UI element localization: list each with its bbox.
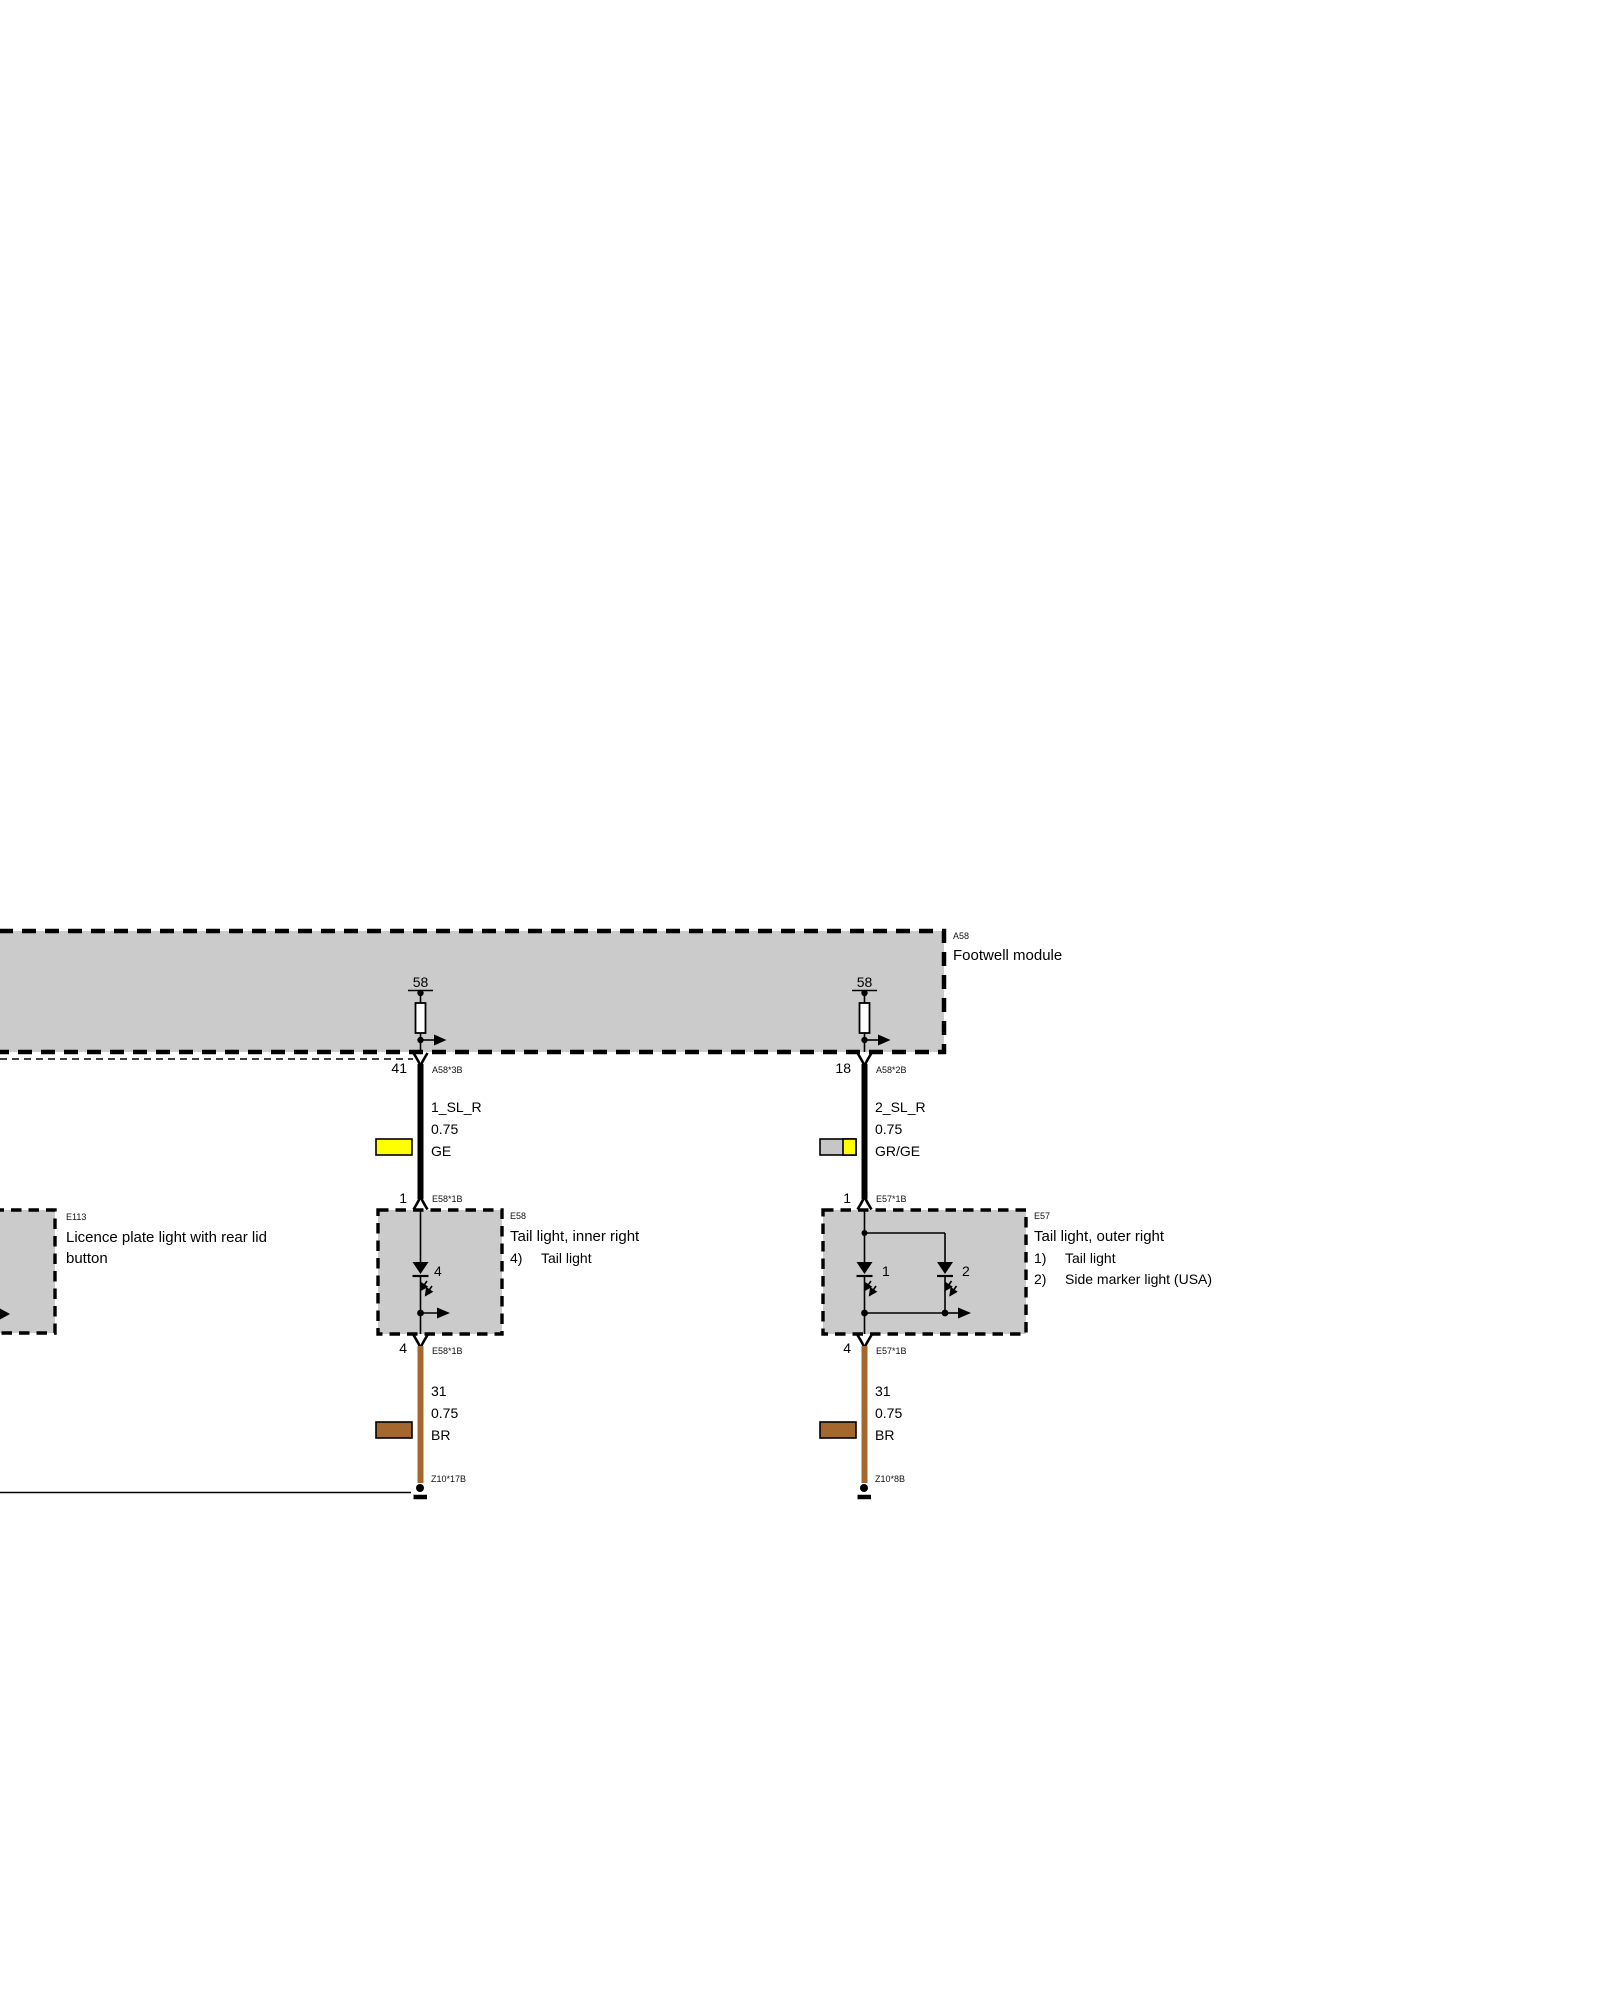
led-number-label: 4 <box>434 1263 442 1279</box>
component-name: Tail light, inner right <box>510 1228 639 1245</box>
component-name: Tail light, outer right <box>1034 1228 1164 1245</box>
connector-code: E58*1B <box>432 1195 463 1204</box>
wire-size: 0.75 <box>875 1121 902 1137</box>
wire-size: 0.75 <box>875 1405 902 1421</box>
wire-color-swatch-br-left <box>376 1422 412 1438</box>
pin-number: 4 <box>377 1341 407 1355</box>
wire-name: 31 <box>875 1383 891 1399</box>
terminal-58-label: 58 <box>844 974 885 990</box>
wire-color-swatch-br-right <box>820 1422 856 1438</box>
legend-label: Tail light <box>1065 1250 1116 1266</box>
wiring-diagram-svg <box>0 0 1600 2000</box>
ground-code: Z10*17B <box>431 1475 466 1484</box>
component-code: E57 <box>1034 1212 1050 1221</box>
wire-size: 0.75 <box>431 1405 458 1421</box>
wire-size: 0.75 <box>431 1121 458 1137</box>
wire-color: GE <box>431 1143 451 1159</box>
pin-number: 1 <box>821 1191 851 1205</box>
ground-icon-left <box>414 1484 428 1497</box>
legend-row: 4) Tail light <box>510 1250 592 1266</box>
component-code: E113 <box>66 1213 86 1222</box>
pin-number: 41 <box>377 1061 407 1075</box>
wire-color-swatch-ge <box>376 1139 412 1155</box>
junction-dot <box>861 1310 868 1317</box>
legend-row: 2) Side marker light (USA) <box>1034 1271 1212 1287</box>
component-name-line2: button <box>66 1250 108 1267</box>
ground-icon-right <box>858 1484 872 1497</box>
footwell-module-box <box>0 931 944 1052</box>
connector-code: E57*1B <box>876 1195 907 1204</box>
wire-color: BR <box>875 1427 894 1443</box>
led-number-label: 2 <box>962 1263 970 1279</box>
pin-number: 1 <box>377 1191 407 1205</box>
connector-code: A58*2B <box>876 1066 907 1075</box>
legend-number: 1) <box>1034 1250 1065 1266</box>
terminal-58-label: 58 <box>400 974 441 990</box>
wire-color: BR <box>431 1427 450 1443</box>
connector-code: E58*1B <box>432 1347 463 1356</box>
component-name-line1: Licence plate light with rear lid <box>66 1229 267 1246</box>
pin-number: 18 <box>821 1061 851 1075</box>
ground-code: Z10*8B <box>875 1475 905 1484</box>
module-name: Footwell module <box>953 947 1062 964</box>
wire-name: 1_SL_R <box>431 1099 482 1115</box>
legend-number: 2) <box>1034 1271 1065 1287</box>
connector-fork-icon <box>414 1197 428 1210</box>
legend-number: 4) <box>510 1250 541 1266</box>
wiring-diagram-page: A58 Footwell module 58 58 41 A58*3B 1_SL… <box>0 0 1600 2000</box>
connector-fork-icon <box>858 1197 872 1210</box>
tail-light-outer-right-box <box>823 1210 1026 1334</box>
wire-color-swatch-ge-part <box>843 1139 856 1155</box>
legend-label: Tail light <box>541 1250 592 1266</box>
legend-label: Side marker light (USA) <box>1065 1271 1212 1287</box>
wire-name: 2_SL_R <box>875 1099 926 1115</box>
legend-row: 1) Tail light <box>1034 1250 1116 1266</box>
connector-code: E57*1B <box>876 1347 907 1356</box>
component-code: E58 <box>510 1212 526 1221</box>
wire-name: 31 <box>431 1383 447 1399</box>
module-code: A58 <box>953 932 969 941</box>
wire-color: GR/GE <box>875 1143 920 1159</box>
connector-code: A58*3B <box>432 1066 463 1075</box>
pin-number: 4 <box>821 1341 851 1355</box>
led-number-label: 1 <box>882 1263 890 1279</box>
